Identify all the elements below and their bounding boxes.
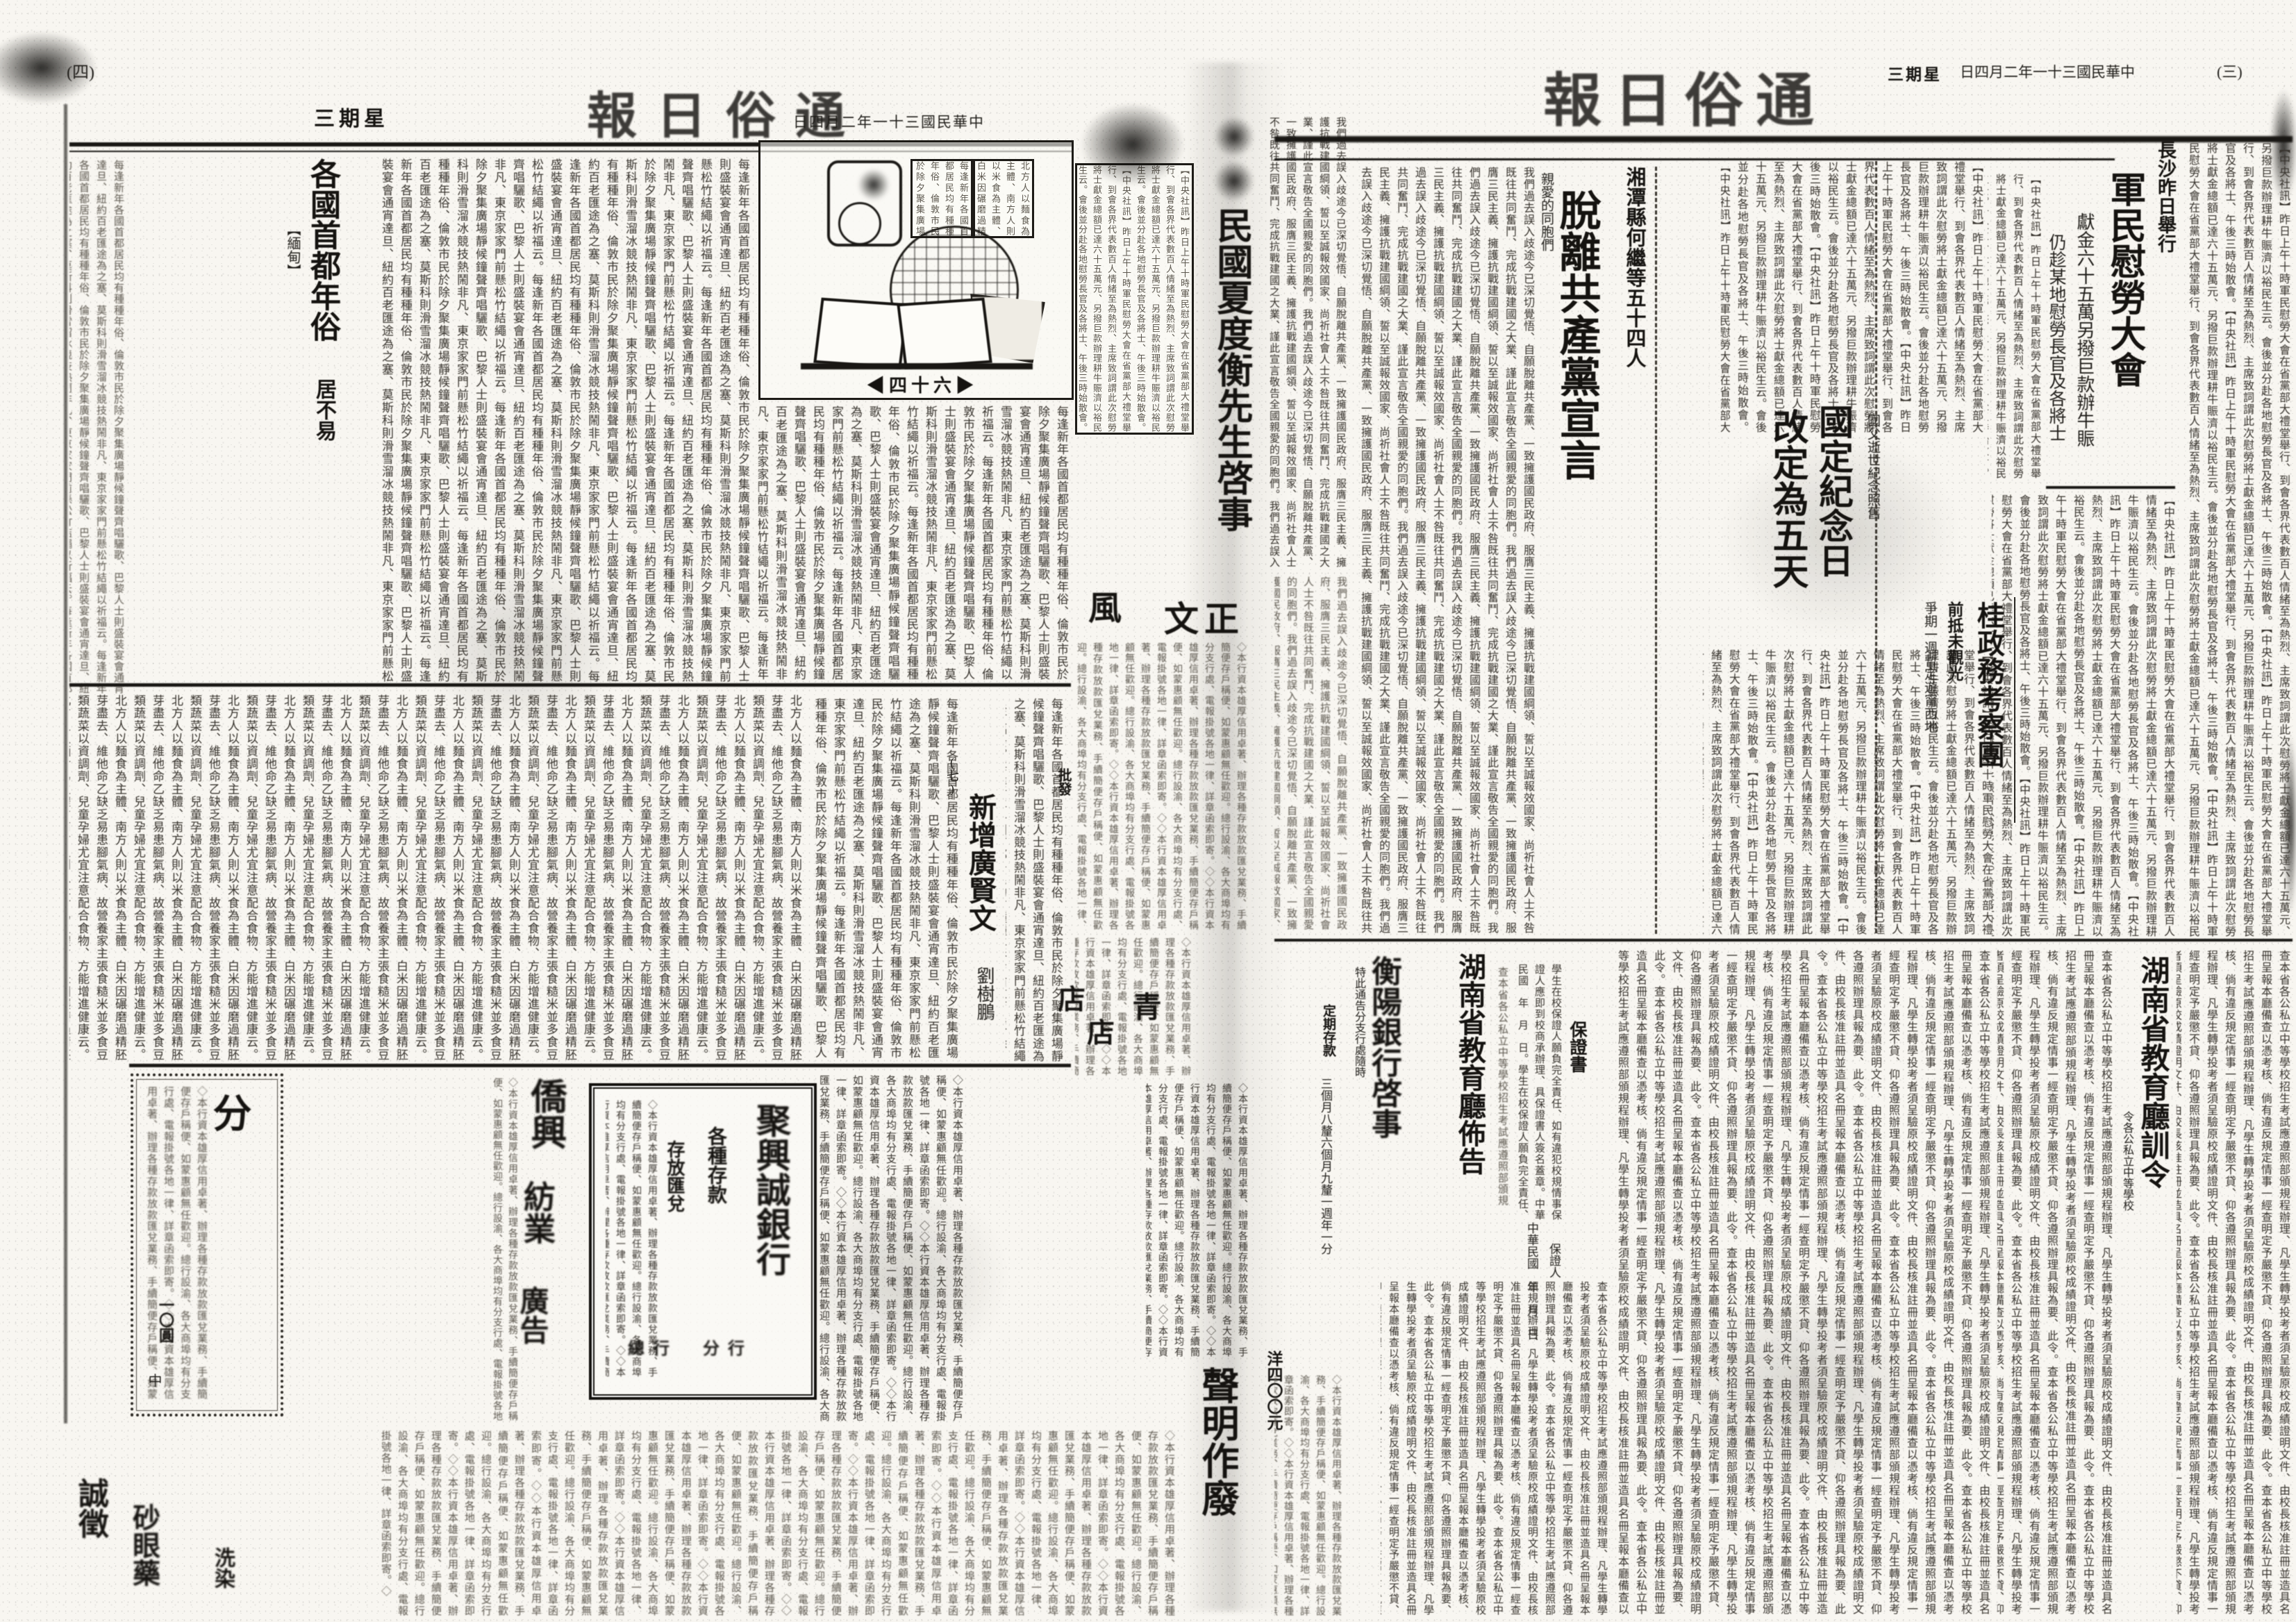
- headline-edu-order: 湖南省教育廳訓令: [2136, 955, 2174, 1271]
- fold-right-column-2: 我們過去誤入歧途今已深切覺悟、自願脫離共產黨、一致擁護國民政府、服膺三民主義、擁…: [1274, 576, 1349, 930]
- bank-ad-line1: 各種存款: [700, 1126, 729, 1240]
- customs-subhead: 居不易: [310, 378, 339, 469]
- bank-rates: 三個月八釐六個月九釐一週年一分: [1315, 1078, 1334, 1359]
- newspaper-scan: (四) 三期星 報日俗通 日四月二年一十三國民華中 每逢新年各國首都居民均有種種…: [0, 0, 2296, 1622]
- fold-bottom-text: ◇本行資本雄厚信用卓著、辦理各種存款放款匯兌業務、手續簡便存戶稱便、如蒙惠顧無任…: [1146, 1083, 1250, 1357]
- bottom-strip-classifieds: ◇本行資本雄厚信用卓著、辦理各種存款放款匯兌業務、手續簡便存戶稱便、如蒙惠顧無任…: [306, 1430, 1177, 1616]
- fold-char-shop-1: 店: [1056, 985, 1089, 1021]
- bank-ad-box: ◇本行資本雄厚信用卓著、辦理各種存款放款匯兌業務、手續簡便存戶稱便、如蒙惠顧無任…: [589, 1083, 817, 1400]
- headline-declaration: 脫離共產黨宣言: [1556, 189, 1607, 498]
- right-page-number: (三): [2217, 60, 2258, 81]
- edu-order-body-right: 查本省各公私立中等學校招生考試應遵照部頒規程辦理、凡學生轉學投考者須呈驗原校成績…: [2177, 950, 2292, 1615]
- small-ad-chengzheng: 誠徵: [67, 1478, 113, 1599]
- customs-tag: 【緬甸】: [281, 222, 303, 306]
- memorial-top-body: 【中央社訊】昨日上午十時軍民慰勞大會在省黨部大禮堂舉行、到會各界代表數百人情緒至…: [1721, 161, 1985, 433]
- small-ad-eyedrug: 砂眼藥: [124, 1503, 164, 1622]
- headline-world-customs: 各國首都年俗: [306, 158, 344, 367]
- xianwen-marker: (七): [942, 755, 961, 804]
- xianwen-body-left: 每逢新年各國首都居民均有種種年俗、倫敦市民於除夕聚集廣場靜候鐘聲齊唱驪歌、巴黎人…: [811, 698, 960, 1059]
- declaration-body: 我們過去誤入歧途今已深切覺悟、自願脫離共產黨、一致擁護國民政府、服膺三民主義、擁…: [1354, 167, 1536, 934]
- right-dateline: 日四月二年一十三國民華中: [1960, 61, 2210, 83]
- left-dateline: 日四月二年一十三國民華中: [793, 111, 1071, 132]
- left-mid-body: 北方人以麵食為主體、南方人則以米食為主體、白米因碾磨過精胚芽盡去、維他命乙缺乏易…: [69, 694, 804, 1061]
- guangxi-sub-1: 前抵未觀光: [1945, 601, 1965, 733]
- edu-order-body-mid: 查本省各公私立中等學校招生考試應遵照部頒規程辦理、凡學生轉學投考者須呈驗原校成績…: [1997, 950, 2114, 1615]
- trade-ad-big-3: 廣告: [515, 1286, 553, 1364]
- fold-char-qing: 青: [1131, 992, 1165, 1029]
- left-margin-column: 每逢新年各國首都居民均有種種年俗、倫敦市民於除夕聚集廣場靜候鐘聲齊唱驪歌、巴黎人…: [69, 160, 126, 694]
- headline-void-notice: 聲明作廢: [1197, 1366, 1245, 1560]
- right-masthead: 報日俗通: [1543, 54, 1849, 131]
- classified-big-char: 分: [211, 1093, 257, 1143]
- headline-xianwen: 新增廣賢文: [965, 793, 1000, 956]
- lead-kicker: 長沙昨日舉行: [2153, 140, 2179, 279]
- edu-notice-kicker-col: 查本省各公私立中等學校招生考試應遵照部頒規程辦理、凡學生轉學投考者須呈驗原校成績…: [1491, 967, 1511, 1206]
- lead-body-left: 【中央社訊】昨日上午十時軍民慰勞大會在省黨部大禮堂舉行、到會各界代表數百人情緒至…: [1988, 174, 2043, 479]
- customs-body: 每逢新年各國首都居民均有種種年俗、倫敦市民於除夕聚集廣場靜候鐘聲齊唱驪歌、巴黎人…: [381, 158, 752, 683]
- headline-memorial-1: 國定紀念日: [1818, 404, 1858, 639]
- fold-char-shop-2: 店: [1085, 1018, 1118, 1054]
- left-bottom-rule: [129, 1064, 1071, 1067]
- guarantee-form-text: 學生在校保證人願負完全責任、如有違犯校規情事保證人應即到校商承辦理、具保證書人簽…: [1514, 964, 1564, 1221]
- guangxi-sub-2: 爭期一週暫定遊甯西地: [1921, 601, 1939, 817]
- wavy-rule-declaration: [1655, 167, 1659, 934]
- fold-char-zhengwen: 文正: [1164, 592, 1249, 637]
- classified-ad-box: ◇本行資本雄厚信用卓著、辦理各種存款放款匯兌業務、手續簡便存戶稱便、如蒙惠顧無任…: [131, 1073, 283, 1416]
- fold-char-wind: 風: [1085, 590, 1125, 635]
- bank-notice-line: 特此通告分支行處隨時: [1349, 967, 1367, 1203]
- classified-price: 一〇圓: [154, 1297, 176, 1375]
- declaration-lead: 親愛的同胞們: [1538, 172, 1556, 394]
- headline-bank-notice: 衡陽銀行啓事: [1368, 955, 1406, 1233]
- headline-xiaduheng-notice: 民國夏度衡先生啓事: [1211, 207, 1257, 587]
- right-mid-rule: [1274, 939, 2293, 942]
- fold-right-column: 我們過去誤入歧途今已深切覺悟、自願脫離共產黨、一致擁護國民政府、服膺三民主義、擁…: [1267, 117, 1349, 568]
- headline-junmin-weilao: 軍民慰勞大會: [2102, 171, 2150, 412]
- right-header-rule-thin: [1274, 158, 2115, 160]
- memorial-kicker: 國父逝世紀念照舊: [1864, 414, 1882, 629]
- supplement-box: 每逢新年各國首都居民均有種種年俗、倫敦市民於除夕聚集廣場靜候鐘聲齊唱驪歌、巴黎人…: [758, 140, 1074, 400]
- seal-smudge: [858, 169, 890, 201]
- fold-char-pifa: 批發: [1053, 768, 1074, 817]
- open-book-right-icon: [897, 298, 992, 369]
- open-book-left-icon: [813, 298, 909, 369]
- lead-section-rule: [2046, 486, 2175, 489]
- film-edge-line: [64, 104, 67, 1423]
- headline-memorial-2: 改定為五天: [1770, 408, 1813, 643]
- right-weekday: 三期星: [1888, 61, 1954, 85]
- ads-right-text: ◇本行資本雄厚信用卓著、辦理各種存款放款匯兌業務、手續簡便存戶稱便、如蒙惠顧無任…: [818, 1075, 965, 1422]
- book-base-rule: [801, 363, 1033, 369]
- headline-guangxi-tour: 桂政務考察團: [1977, 601, 2008, 825]
- xianwen-author: 劉樹鵬: [970, 967, 997, 1048]
- fold-mid-text: ◇本行資本雄厚信用卓著、辦理各種存款放款匯兌業務、手續簡便存戶稱便、如蒙惠顧無任…: [1075, 642, 1249, 930]
- notice-smudged-char: [1214, 161, 1254, 201]
- bank-ad-footer: 總行 分行: [628, 1335, 781, 1364]
- trade-ad-big-2: 紡業: [518, 1180, 560, 1265]
- seal-stamp-icon: [827, 160, 902, 246]
- lead-body-lower: 【中央社訊】昨日上午十時軍民慰勞大會在省黨部大禮堂舉行、到會各界代表數百人情緒至…: [1992, 494, 2177, 937]
- fold-smudge: [1081, 103, 1185, 186]
- trade-ad-big-1: 僑興: [526, 1078, 571, 1169]
- trade-ad: ◇本行資本雄厚信用卓著、辦理各種存款放款匯兌業務、手續簡便存戶稱便、如蒙惠顧無任…: [486, 1073, 590, 1424]
- fold-top-box: 【中央社訊】昨日上午十時軍民慰勞大會在省黨部大禮堂舉行、到會各界代表數百人情緒至…: [1075, 163, 1194, 435]
- left-page-number: (四): [67, 58, 115, 82]
- supplement-text: 每逢新年各國首都居民均有種種年俗、倫敦市民於除夕聚集廣場靜候鐘聲齊唱驪歌、巴黎人…: [758, 405, 1071, 680]
- bank-deposit-label: 定期存款: [1318, 1004, 1338, 1073]
- notice-smudged-char: [1214, 117, 1254, 157]
- edu-notice-body-lower: 查本省各公私立中等學校招生考試應遵照部頒規程辦理、凡學生轉學投考者須呈驗原校成績…: [1381, 1281, 1610, 1616]
- declaration-kicker: 湘潭縣何繼等五十四人: [1620, 167, 1649, 430]
- lead-subhead-1: 獻金六十五萬另撥巨款辦牛賑: [2074, 212, 2097, 466]
- right-margin-column: 【中央社訊】昨日上午十時軍民慰勞大會在省黨部大禮堂舉行、到會各界代表數百人情緒至…: [2182, 142, 2292, 937]
- lead-subhead-2: 仍趁某地慰勞長官及各將士: [2046, 233, 2068, 473]
- left-weekday: 三期星: [314, 101, 411, 131]
- left-mid-rule: [69, 683, 1071, 687]
- trade-ad-text: ◇本行資本雄厚信用卓著、辦理各種存款放款匯兌業務、手續簡便存戶稱便、如蒙惠顧無任…: [488, 1078, 519, 1421]
- classified-mark: 中: [144, 1373, 164, 1396]
- edu-order-kicker: 令各公私立中等學校: [2117, 1111, 2135, 1278]
- fold-left-bottom-text: ◇本行資本雄厚信用卓著、辦理各種存款放款匯兌業務、手續簡便存戶稱便、如蒙惠顧無任…: [1274, 1375, 1344, 1616]
- classified-text: ◇本行資本雄厚信用卓著、辦理各種存款放款匯兌業務、手續簡便存戶稱便、如蒙惠顧無任…: [143, 1086, 210, 1400]
- seal-ring-icon: [838, 202, 881, 245]
- left-masthead: 報日俗通: [587, 75, 934, 143]
- title-box-2: 北方人以麵食為主體、南方人則以米食為主體、白米因碾磨過精胚芽盡去、維他命乙缺乏易…: [973, 159, 1034, 238]
- guarantee-title: 保證書: [1565, 1021, 1589, 1094]
- guangxi-rule: [2014, 597, 2015, 823]
- supplement-issue-number: ◀四十六▶: [849, 371, 995, 395]
- right-header-rule: [1274, 136, 2293, 142]
- bank-ad-line2: 存放匯兌: [661, 1140, 688, 1246]
- headline-edu-notice: 湖南省教育廳佈告: [1454, 953, 1490, 1272]
- edu-notice-body: 查本省各公私立中等學校招生考試應遵照部頒規程辦理、凡學生轉學投考者須呈驗原校成績…: [1611, 950, 1992, 1615]
- small-ad-laundry: 洗染: [208, 1547, 238, 1616]
